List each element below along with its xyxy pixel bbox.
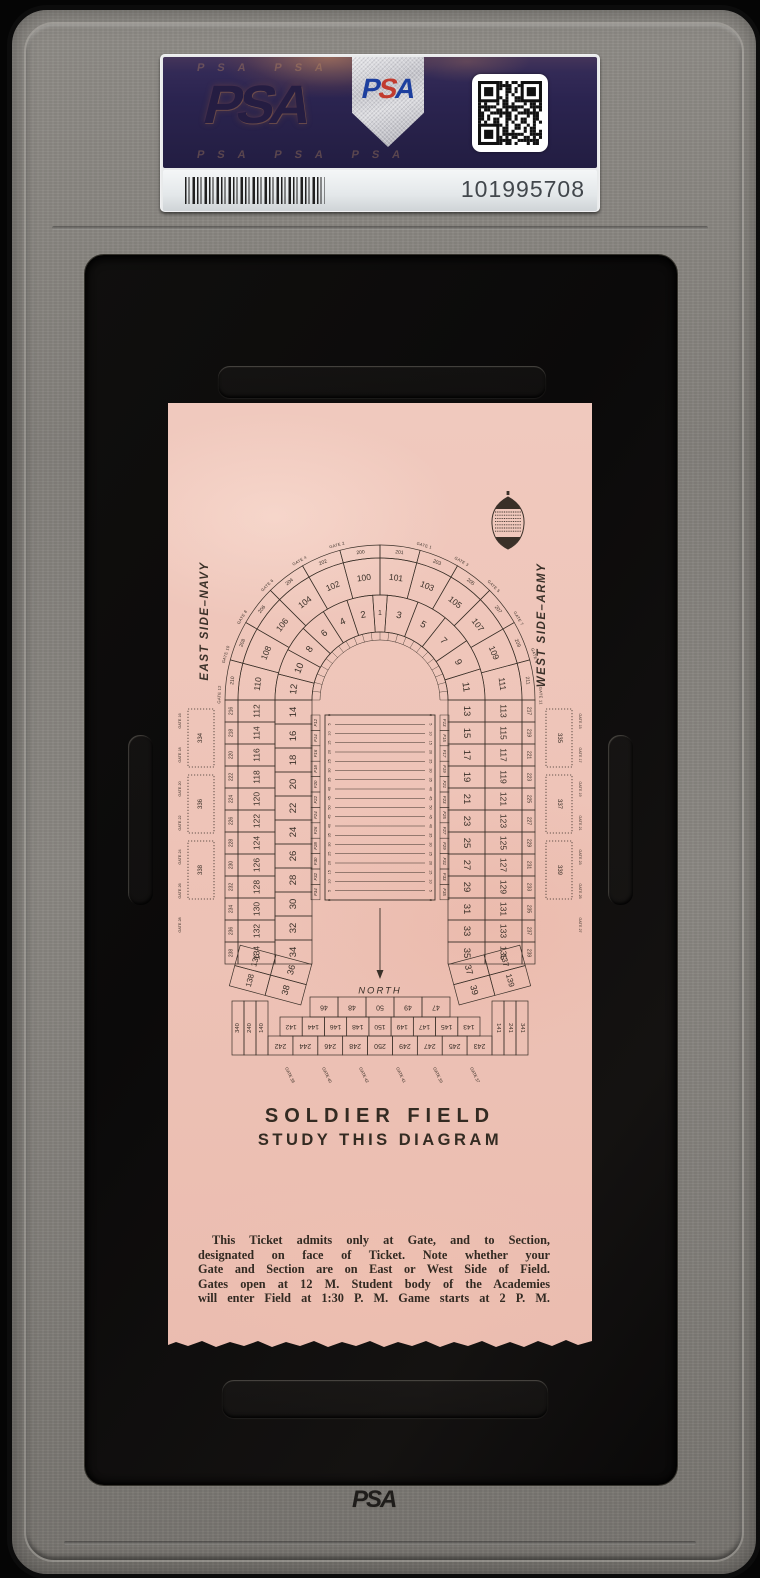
svg-text:103: 103: [419, 579, 436, 594]
svg-text:19: 19: [461, 772, 472, 783]
svg-text:F27: F27: [442, 827, 447, 835]
notice-line: Gates open at 12 M. Student body of the …: [198, 1277, 550, 1292]
svg-text:203: 203: [432, 558, 442, 567]
svg-text:GATE 38: GATE 38: [284, 1066, 296, 1084]
svg-text:40: 40: [429, 787, 433, 791]
svg-text:13: 13: [461, 706, 472, 717]
svg-text:142: 142: [285, 1023, 297, 1030]
svg-text:9: 9: [452, 658, 464, 668]
svg-text:236: 236: [229, 927, 235, 936]
svg-text:GATE 25: GATE 25: [578, 883, 582, 898]
notice-line: designated on face of Ticket. Note wheth…: [198, 1248, 550, 1263]
svg-text:F29: F29: [442, 842, 447, 850]
svg-text:144: 144: [307, 1023, 319, 1030]
svg-text:3: 3: [395, 610, 403, 622]
svg-text:114: 114: [252, 726, 262, 740]
stadium-seating-diagram: 2102082062042022002012032052072092111101…: [168, 403, 592, 1348]
notice-line: Gate and Section are on East or West Sid…: [198, 1262, 550, 1277]
svg-text:40: 40: [328, 824, 332, 828]
svg-text:30: 30: [328, 768, 332, 772]
svg-text:239: 239: [526, 949, 532, 958]
svg-text:30: 30: [429, 842, 433, 846]
svg-text:2: 2: [360, 609, 367, 621]
svg-text:18: 18: [288, 755, 299, 766]
svg-text:242: 242: [275, 1042, 287, 1049]
svg-text:15: 15: [328, 870, 332, 874]
svg-text:F12: F12: [313, 718, 318, 726]
svg-text:206: 206: [257, 604, 267, 614]
svg-text:F16: F16: [313, 749, 318, 757]
qr-code-icon: [472, 74, 548, 152]
svg-text:248: 248: [349, 1042, 361, 1049]
svg-text:220: 220: [229, 751, 235, 760]
svg-text:GATE 24: GATE 24: [178, 849, 182, 864]
svg-text:104: 104: [296, 594, 314, 611]
svg-text:120: 120: [252, 792, 262, 806]
svg-text:222: 222: [229, 773, 235, 782]
svg-text:24: 24: [288, 827, 299, 838]
svg-text:217: 217: [526, 707, 532, 716]
svg-text:29: 29: [461, 882, 472, 893]
svg-text:107: 107: [470, 616, 487, 634]
svg-text:31: 31: [461, 904, 472, 915]
svg-text:140: 140: [259, 1023, 265, 1033]
svg-text:229: 229: [526, 839, 532, 848]
svg-text:218: 218: [229, 729, 235, 738]
svg-text:0: 0: [328, 899, 332, 901]
notice-line: This Ticket admits only at Gate, and to …: [198, 1233, 550, 1248]
svg-text:145: 145: [441, 1023, 453, 1030]
svg-text:50: 50: [429, 805, 433, 809]
svg-text:245: 245: [449, 1042, 461, 1049]
svg-text:22: 22: [288, 803, 299, 814]
svg-text:228: 228: [229, 839, 235, 848]
svg-text:340: 340: [235, 1023, 241, 1033]
barcode-icon: [185, 177, 325, 204]
svg-text:100: 100: [356, 572, 372, 584]
notice-line: will enter Field at 1:30 P. M. Game star…: [198, 1291, 550, 1306]
svg-text:127: 127: [499, 858, 509, 872]
holder-slot-right: [608, 735, 633, 905]
svg-text:40: 40: [328, 787, 332, 791]
svg-text:147: 147: [419, 1023, 431, 1030]
svg-text:F34: F34: [313, 888, 318, 896]
svg-text:130: 130: [252, 902, 262, 916]
svg-text:F25: F25: [442, 811, 447, 819]
svg-text:25: 25: [429, 759, 433, 763]
svg-text:F21: F21: [442, 781, 447, 789]
svg-text:GATE 37: GATE 37: [469, 1066, 481, 1084]
svg-text:GATE 2: GATE 2: [329, 540, 346, 549]
admission-notice: This Ticket admits only at Gate, and to …: [198, 1233, 550, 1306]
svg-text:GATE 16: GATE 16: [178, 713, 182, 728]
svg-text:121: 121: [499, 792, 509, 806]
svg-text:128: 128: [252, 880, 262, 894]
svg-text:14: 14: [288, 707, 299, 718]
svg-text:240: 240: [247, 1023, 253, 1033]
svg-text:243: 243: [474, 1042, 486, 1049]
west-side-label: WEST SIDE–ARMY: [536, 550, 552, 700]
svg-text:250: 250: [374, 1042, 386, 1049]
svg-text:230: 230: [229, 861, 235, 870]
svg-text:F20: F20: [313, 780, 318, 788]
svg-text:25: 25: [429, 852, 433, 856]
svg-text:227: 227: [526, 817, 532, 826]
svg-text:F24: F24: [313, 811, 318, 819]
svg-text:F26: F26: [313, 826, 318, 834]
svg-text:235: 235: [526, 905, 532, 914]
svg-text:5: 5: [328, 723, 332, 725]
ticket-back: 2102082062042022002012032052072092111101…: [168, 403, 592, 1348]
svg-text:125: 125: [499, 836, 509, 850]
shield-psa-letters: PSA: [349, 73, 428, 105]
svg-text:NORTH: NORTH: [358, 986, 402, 997]
svg-text:5: 5: [418, 619, 428, 631]
svg-text:32: 32: [288, 923, 299, 934]
svg-text:232: 232: [229, 883, 235, 892]
svg-text:GATE 1: GATE 1: [416, 541, 433, 550]
svg-text:F17: F17: [442, 750, 447, 758]
svg-text:341: 341: [519, 1023, 525, 1033]
svg-text:216: 216: [229, 707, 235, 716]
east-side-label: EAST SIDE–NAVY: [199, 546, 215, 696]
svg-text:30: 30: [328, 842, 332, 846]
svg-text:F28: F28: [313, 842, 318, 850]
svg-text:F31: F31: [442, 858, 447, 866]
svg-text:234: 234: [229, 905, 235, 914]
svg-text:10: 10: [429, 731, 433, 735]
svg-text:101: 101: [388, 572, 404, 584]
svg-text:113: 113: [499, 704, 509, 718]
svg-text:GATE 7: GATE 7: [513, 610, 526, 627]
svg-text:F33: F33: [442, 873, 447, 881]
svg-text:GATE 21: GATE 21: [578, 815, 582, 830]
svg-text:334: 334: [198, 732, 204, 743]
svg-text:35: 35: [461, 948, 472, 959]
svg-text:23: 23: [461, 816, 472, 827]
svg-text:12: 12: [288, 683, 300, 695]
svg-text:5: 5: [429, 890, 433, 892]
svg-text:119: 119: [499, 770, 509, 784]
svg-text:221: 221: [526, 751, 532, 760]
svg-text:118: 118: [252, 770, 262, 784]
svg-text:GATE 4: GATE 4: [291, 554, 308, 566]
svg-text:138: 138: [244, 972, 256, 988]
svg-text:30: 30: [288, 899, 299, 910]
svg-text:338: 338: [198, 864, 204, 875]
svg-text:132: 132: [252, 924, 262, 938]
svg-text:F18: F18: [313, 765, 318, 773]
svg-text:GATE 20: GATE 20: [178, 781, 182, 796]
holder-slot-left: [128, 735, 153, 905]
svg-text:38: 38: [280, 984, 292, 996]
svg-text:15: 15: [461, 728, 472, 739]
hologram-pattern-row: PSA PSA PSA: [196, 149, 414, 161]
svg-text:GATE 42: GATE 42: [358, 1066, 370, 1084]
holder-slot-top: [218, 366, 546, 398]
svg-text:39: 39: [468, 984, 480, 996]
svg-text:224: 224: [229, 795, 235, 804]
svg-text:F30: F30: [313, 857, 318, 865]
svg-text:117: 117: [499, 748, 509, 762]
svg-text:0: 0: [429, 899, 433, 901]
svg-text:GATE 15: GATE 15: [578, 713, 582, 728]
svg-text:200: 200: [356, 549, 365, 556]
svg-text:GATE 6: GATE 6: [260, 578, 275, 593]
svg-text:20: 20: [288, 779, 299, 790]
svg-text:247: 247: [424, 1042, 436, 1049]
svg-text:47: 47: [432, 1004, 440, 1011]
svg-text:223: 223: [526, 773, 532, 782]
svg-text:33: 33: [461, 926, 472, 937]
svg-text:336: 336: [198, 798, 204, 809]
svg-text:201: 201: [395, 549, 404, 556]
svg-text:26: 26: [288, 851, 299, 862]
svg-text:10: 10: [292, 661, 306, 675]
svg-text:45: 45: [328, 796, 332, 800]
svg-text:F14: F14: [313, 734, 318, 742]
svg-text:45: 45: [429, 796, 433, 800]
svg-text:25: 25: [328, 852, 332, 856]
svg-text:122: 122: [252, 814, 262, 828]
svg-text:15: 15: [328, 741, 332, 745]
svg-text:209: 209: [513, 638, 522, 648]
svg-text:109: 109: [487, 644, 502, 661]
svg-text:233: 233: [526, 883, 532, 892]
svg-text:50: 50: [328, 805, 332, 809]
svg-text:GATE 17: GATE 17: [578, 747, 582, 762]
svg-text:205: 205: [465, 577, 475, 587]
svg-text:GATE 12: GATE 12: [216, 685, 222, 704]
svg-text:30: 30: [429, 768, 433, 772]
graded-slab-photo: PSA PSA PSA PSA PSA PSA PSA PSA 10199570…: [0, 0, 760, 1578]
svg-text:249: 249: [399, 1042, 411, 1049]
svg-text:GATE 18: GATE 18: [178, 747, 182, 762]
svg-text:208: 208: [238, 638, 247, 648]
svg-text:20: 20: [429, 861, 433, 865]
svg-text:105: 105: [447, 594, 465, 611]
svg-text:246: 246: [324, 1042, 336, 1049]
svg-text:110: 110: [252, 676, 264, 691]
svg-text:0: 0: [429, 714, 433, 716]
svg-text:219: 219: [526, 729, 532, 738]
svg-text:238: 238: [229, 949, 235, 958]
svg-text:148: 148: [352, 1023, 364, 1030]
svg-text:211: 211: [524, 676, 531, 685]
svg-text:10: 10: [429, 879, 433, 883]
svg-text:25: 25: [461, 838, 472, 849]
svg-text:129: 129: [499, 880, 509, 894]
svg-text:46: 46: [320, 1004, 328, 1011]
svg-text:40: 40: [429, 824, 433, 828]
psa-emboss-logo-icon: PSA: [352, 1486, 395, 1514]
svg-text:49: 49: [404, 1004, 412, 1011]
psa-cert-label: PSA PSA PSA PSA PSA PSA PSA PSA 10199570…: [160, 54, 600, 212]
cert-number: 101995708: [461, 176, 585, 203]
svg-text:F19: F19: [442, 765, 447, 773]
svg-text:106: 106: [274, 616, 291, 634]
svg-text:F13: F13: [442, 719, 447, 727]
svg-text:126: 126: [252, 858, 262, 872]
svg-text:1: 1: [378, 610, 382, 617]
svg-text:45: 45: [429, 815, 433, 819]
svg-text:146: 146: [330, 1023, 342, 1030]
svg-text:GATE 40: GATE 40: [321, 1066, 333, 1084]
svg-text:111: 111: [497, 677, 509, 691]
svg-text:112: 112: [252, 704, 262, 718]
svg-text:GATE 3: GATE 3: [454, 555, 471, 568]
ticket-subtitle: STUDY THIS DIAGRAM: [168, 1131, 592, 1150]
svg-text:10: 10: [328, 731, 332, 735]
svg-text:231: 231: [526, 861, 532, 870]
svg-text:7: 7: [437, 635, 449, 646]
svg-text:4: 4: [338, 616, 348, 628]
svg-text:207: 207: [493, 604, 503, 614]
svg-text:20: 20: [429, 750, 433, 754]
svg-text:GATE 23: GATE 23: [578, 849, 582, 864]
svg-text:48: 48: [348, 1004, 356, 1011]
svg-text:123: 123: [499, 814, 509, 828]
svg-text:5: 5: [328, 890, 332, 892]
svg-text:244: 244: [299, 1042, 311, 1049]
label-navy-panel: PSA PSA PSA PSA PSA PSA PSA PSA: [163, 57, 597, 168]
svg-text:GATE 39: GATE 39: [432, 1066, 444, 1084]
svg-text:6: 6: [319, 628, 330, 640]
svg-text:5: 5: [429, 723, 433, 725]
svg-text:35: 35: [328, 778, 332, 782]
svg-text:124: 124: [252, 836, 262, 850]
svg-text:17: 17: [461, 750, 472, 761]
svg-text:F32: F32: [313, 872, 318, 880]
svg-text:15: 15: [429, 870, 433, 874]
svg-text:141: 141: [495, 1023, 501, 1033]
svg-text:143: 143: [463, 1023, 475, 1030]
label-barcode-strip: 101995708: [163, 170, 597, 211]
svg-text:GATE 28: GATE 28: [178, 917, 182, 932]
svg-text:GATE 22: GATE 22: [178, 815, 182, 830]
svg-text:339: 339: [556, 865, 562, 876]
svg-text:8: 8: [304, 644, 316, 655]
svg-text:0: 0: [328, 714, 332, 716]
svg-text:20: 20: [328, 861, 332, 865]
svg-text:35: 35: [429, 833, 433, 837]
svg-text:337: 337: [556, 799, 562, 810]
svg-text:36: 36: [285, 964, 297, 976]
svg-text:241: 241: [507, 1023, 513, 1033]
svg-text:45: 45: [328, 815, 332, 819]
svg-text:131: 131: [499, 902, 509, 916]
svg-text:50: 50: [376, 1004, 384, 1011]
svg-text:GATE 27: GATE 27: [578, 917, 582, 932]
svg-text:21: 21: [461, 794, 472, 805]
svg-text:237: 237: [526, 927, 532, 936]
svg-text:108: 108: [259, 644, 274, 661]
svg-text:GATE 19: GATE 19: [578, 781, 582, 796]
svg-text:116: 116: [252, 748, 262, 762]
slab-groove-bottom: [64, 1541, 696, 1545]
svg-text:GATE 41: GATE 41: [395, 1066, 407, 1084]
svg-text:F15: F15: [442, 734, 447, 742]
psa-hologram-logo-icon: PSA: [198, 78, 314, 132]
svg-text:11: 11: [459, 681, 471, 692]
svg-text:225: 225: [526, 795, 532, 804]
slab-groove-top: [52, 226, 708, 230]
svg-text:115: 115: [499, 726, 509, 740]
svg-text:GATE 10: GATE 10: [221, 644, 231, 663]
svg-text:210: 210: [229, 676, 236, 685]
ticket-title: SOLDIER FIELD: [168, 1105, 592, 1128]
svg-text:204: 204: [284, 577, 294, 587]
svg-text:335: 335: [556, 733, 562, 744]
svg-text:35: 35: [429, 778, 433, 782]
psa-shield-logo-icon: PSA: [352, 57, 424, 147]
svg-text:139: 139: [504, 973, 516, 989]
svg-text:16: 16: [288, 731, 299, 742]
svg-text:F35: F35: [442, 888, 447, 896]
svg-text:F23: F23: [442, 796, 447, 804]
svg-text:102: 102: [324, 578, 341, 593]
svg-text:37: 37: [463, 964, 475, 976]
svg-text:20: 20: [328, 750, 332, 754]
svg-text:35: 35: [328, 833, 332, 837]
svg-text:202: 202: [318, 558, 328, 567]
svg-text:25: 25: [328, 759, 332, 763]
svg-text:150: 150: [374, 1023, 386, 1030]
svg-text:F22: F22: [313, 795, 318, 803]
svg-text:34: 34: [288, 947, 299, 958]
svg-text:27: 27: [461, 860, 472, 871]
svg-text:10: 10: [328, 879, 332, 883]
svg-text:15: 15: [429, 741, 433, 745]
svg-text:GATE 26: GATE 26: [178, 883, 182, 898]
svg-text:28: 28: [288, 875, 299, 886]
holder-slot-bottom: [222, 1380, 548, 1418]
svg-text:226: 226: [229, 817, 235, 826]
svg-text:149: 149: [396, 1023, 408, 1030]
svg-text:133: 133: [499, 924, 509, 938]
